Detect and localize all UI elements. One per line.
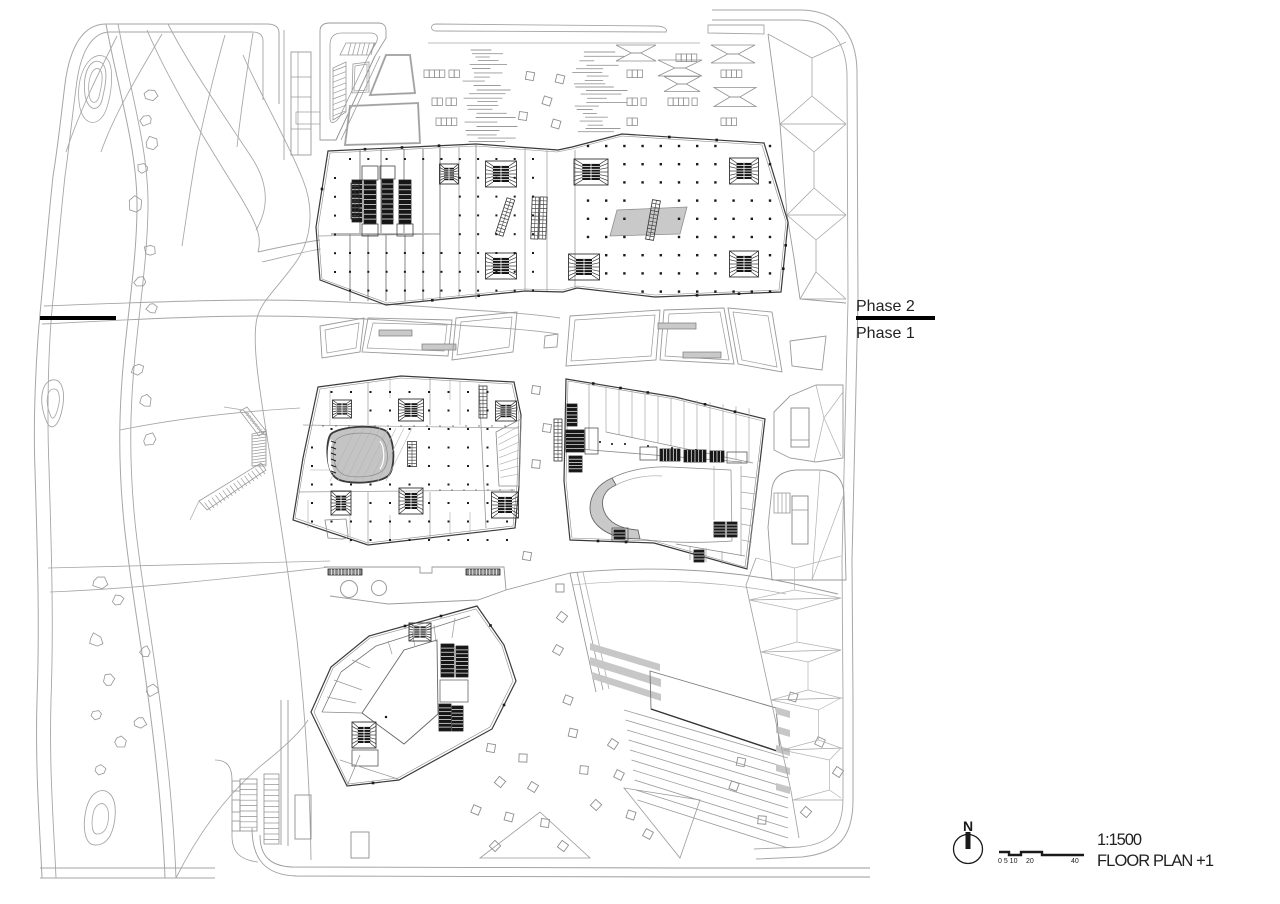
svg-text:0 5 10: 0 5 10 xyxy=(998,858,1018,865)
svg-text:Phase 1: Phase 1 xyxy=(856,325,915,342)
svg-text:FLOOR PLAN +1: FLOOR PLAN +1 xyxy=(1097,852,1214,870)
svg-text:40: 40 xyxy=(1071,858,1079,865)
svg-text:20: 20 xyxy=(1026,858,1034,865)
svg-text:Phase 2: Phase 2 xyxy=(856,298,915,315)
svg-text:1:1500: 1:1500 xyxy=(1097,831,1142,849)
svg-text:N: N xyxy=(963,818,973,834)
